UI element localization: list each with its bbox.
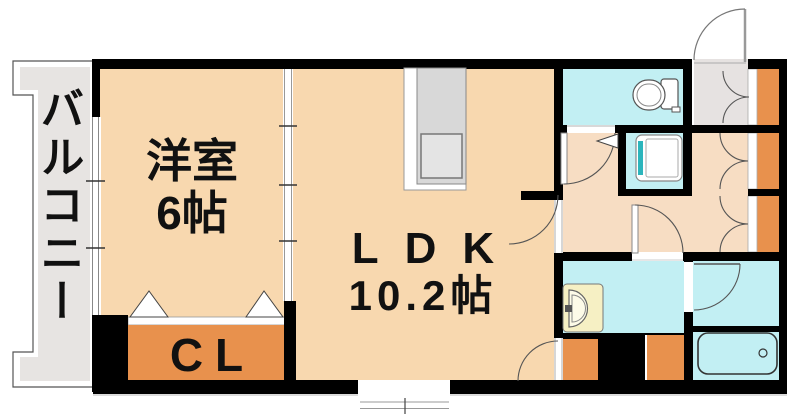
western-room-label: 洋室 6帖 xyxy=(100,136,284,239)
faucet xyxy=(565,305,572,312)
floor-plan: バルコニー 洋室 6帖 LDK 10.2帖 CL xyxy=(0,0,800,416)
entry-floor xyxy=(694,59,748,125)
toilet xyxy=(633,79,680,112)
washbasin xyxy=(563,284,603,332)
hall-closet-lower xyxy=(757,196,780,252)
storage-left xyxy=(563,339,598,380)
hall-closet-upper xyxy=(757,133,780,189)
window-south-wall xyxy=(358,380,450,414)
western-room-name: 洋室 xyxy=(100,136,284,188)
shoe-cabinet xyxy=(757,69,780,125)
western-room-size: 6帖 xyxy=(100,188,284,240)
entry-door xyxy=(694,9,745,62)
closet-label: CL xyxy=(128,330,285,381)
shoe-cabinet-front xyxy=(748,69,757,125)
ldk-label: LDK 10.2帖 xyxy=(292,225,554,318)
storage-right xyxy=(647,335,684,380)
washing-machine xyxy=(636,135,682,181)
ldk-name: LDK xyxy=(292,225,554,273)
kitchen-sink xyxy=(421,134,462,178)
ldk-size: 10.2帖 xyxy=(292,273,554,318)
kitchen-counter xyxy=(404,68,466,190)
balcony-label: バルコニー xyxy=(33,86,81,326)
bathroom-floor xyxy=(693,261,780,381)
hall-closet-upper-front xyxy=(748,133,757,189)
hall-closet-lower-front xyxy=(748,196,757,252)
closet-front-track xyxy=(128,317,285,325)
